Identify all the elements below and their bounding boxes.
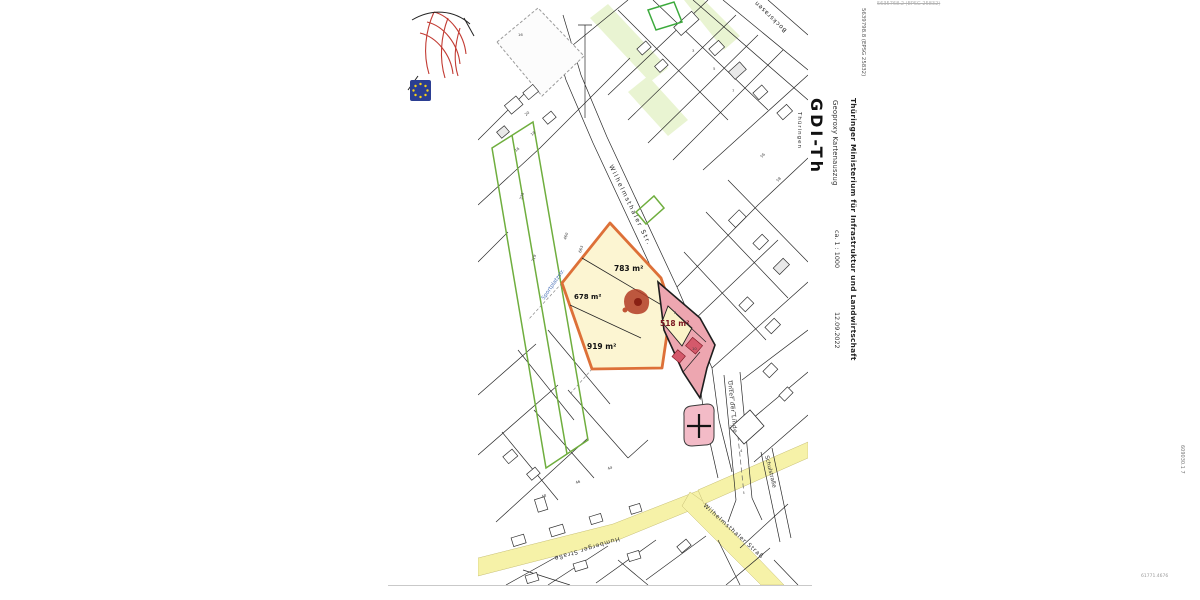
svg-text:58: 58 [775,175,782,182]
scan-area: GDI-Th Thüringen Thüringer Ministerium f… [390,0,814,600]
street-topright-label: Bocksrasen [753,0,788,34]
geoproxy-map-excerpt: GDI-Th Thüringen Thüringer Ministerium f… [0,0,1200,600]
svg-text:44: 44 [607,465,614,471]
coordinate-top: 5635768.2 (EPSG 25832) [877,1,940,7]
svg-text:7: 7 [732,88,735,93]
parcel-518-label: 518 m² [660,319,689,328]
scan-bottom-edge [388,585,812,586]
church-building [684,404,714,446]
cadastral-map: 783 m² 678 m² 919 m² 518 m² Wilhelmsthal… [478,0,808,592]
svg-text:16: 16 [518,32,523,37]
svg-text:4: 4 [740,448,743,453]
coordinate-right: 609030.1 7 [1179,445,1185,474]
logo-title: GDI-Th [807,98,826,175]
svg-text:46: 46 [575,479,582,485]
logo-net-lines [420,12,466,78]
svg-text:335: 335 [518,191,525,200]
svg-text:48: 48 [541,493,548,499]
svg-text:3: 3 [692,48,695,53]
svg-text:719: 719 [530,253,537,262]
svg-text:5: 5 [713,66,716,71]
product-title: Geoproxy Kartenauszug [831,100,839,186]
parcel-678-label: 678 m² [574,293,601,301]
coordinate-left: 5639798.8 (EPSG 25832) [860,8,866,76]
map-date: 12.09.2022 [833,312,841,349]
svg-text:56: 56 [759,151,766,158]
map-scale: ca. 1 : 1000 [833,230,841,268]
ministry-title: Thüringer Ministerium für Infrastruktur … [849,98,858,361]
parcel-919-label: 919 m² [587,342,616,351]
svg-text:10: 10 [692,346,697,351]
parcel-783-label: 783 m² [614,264,643,273]
coordinate-bottom-right: 61771.4676 [1141,574,1168,579]
svg-text:20: 20 [523,109,530,116]
gdi-th-logo [398,6,482,110]
dashed-building-outline [497,8,584,96]
svg-text:663: 663 [577,244,584,253]
svg-text:460: 460 [562,231,569,240]
